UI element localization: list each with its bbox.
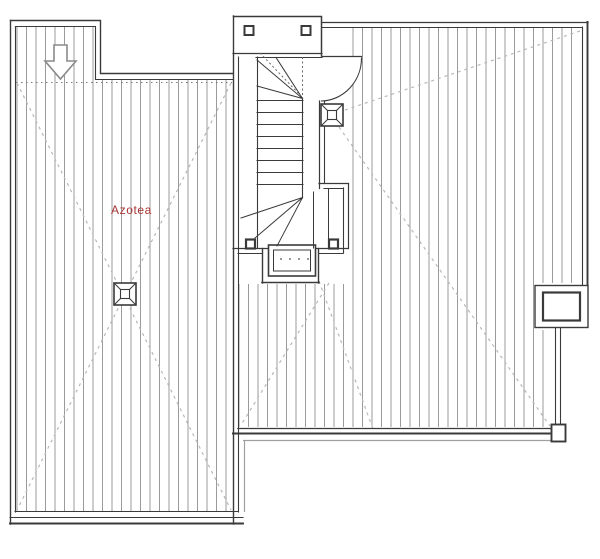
slope-line [319,281,373,429]
parapet-end-block [552,425,566,442]
slope-line [339,127,550,426]
slope-line [342,31,580,111]
skylight-box [269,245,316,276]
newel-post [329,240,338,249]
left-terrace-walls [10,21,243,525]
roof-anchor-square [245,26,254,35]
slope-line [241,283,329,425]
newel-post [246,240,255,249]
chimney-outlet [535,286,588,328]
down-arrow-icon [45,45,76,79]
floor-plan-drawing: Azotea [0,0,600,559]
room-label: Azotea [111,203,152,217]
roof-drain-icon [114,283,136,305]
roof-drain-icon [321,104,343,126]
roof-anchor-square [302,26,311,35]
floor-plan-canvas: Azotea [0,0,600,559]
